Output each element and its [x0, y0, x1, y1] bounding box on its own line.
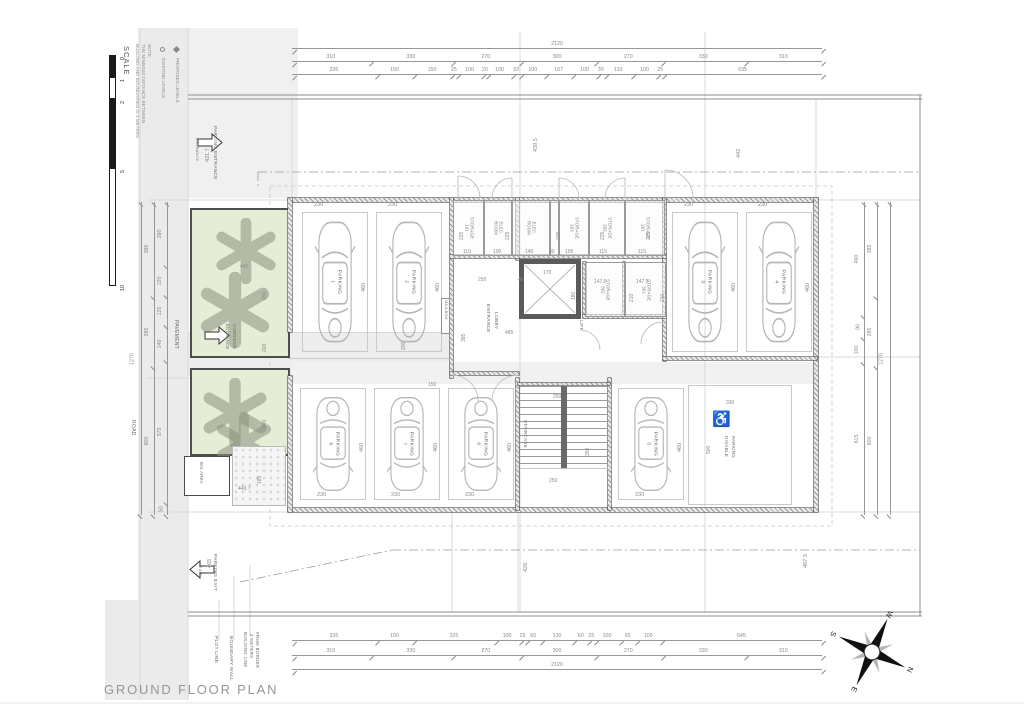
dim-text: 210	[630, 294, 635, 302]
scale-mark: 1	[121, 79, 127, 82]
dim-text: 350	[586, 448, 591, 456]
dim-text: 460	[732, 283, 738, 292]
parking-label: PARKING8	[326, 432, 339, 457]
area-label: ENTRANCE	[484, 304, 489, 333]
dim-text: 500	[707, 446, 712, 454]
note-line: BUILDING AND BOUNDARIES IS 3 METERS	[134, 44, 140, 138]
proposed-levels-label: PROPOSED LEVELS	[174, 58, 179, 103]
parking-label: PARKING6	[474, 432, 487, 457]
dim-text: 460	[360, 443, 366, 452]
dim-text: 180	[572, 292, 577, 300]
note-line: THE MINIMUM DISTANCE BETWEEN	[140, 44, 146, 138]
dim-text: 460	[436, 283, 442, 292]
compass-e: E	[849, 685, 859, 693]
scale-bar-seg	[109, 55, 116, 77]
dim-text: 230	[317, 493, 326, 499]
area-label: PARKING	[731, 436, 736, 458]
note: NOTE: THE MINIMUM DISTANCE BETWEEN BUILD…	[134, 44, 152, 138]
dim-text: 330	[726, 401, 734, 406]
area-label: STAIRCASE	[523, 420, 528, 448]
dim-text: 40	[518, 278, 524, 283]
dim-text: 460	[806, 283, 812, 292]
area-label: PARKING ENTRANCE	[211, 126, 216, 180]
dim-text: 230	[391, 493, 400, 499]
dim-text: 225	[557, 232, 562, 240]
parking-label: PARKING2	[402, 270, 415, 295]
scale-mark: 10	[121, 285, 127, 291]
dim-text: 30	[549, 250, 555, 255]
scale-mark: 5	[121, 170, 127, 173]
dim-text: 115	[638, 250, 646, 255]
dim-text: 442	[737, 149, 743, 158]
mailbox-label: MAILBOX	[444, 300, 448, 320]
dim-text: 230	[465, 493, 474, 499]
dim-text: 230	[635, 493, 644, 499]
area-label: FROM BORDER	[255, 632, 259, 668]
dim-text: 460	[434, 443, 440, 452]
dim-text: 460	[362, 283, 368, 292]
dim-text: 147.5	[594, 280, 607, 285]
parking-label: PARKING7	[400, 432, 413, 457]
area-label: ENTRANCE	[194, 138, 198, 161]
dim-text: 449.7	[238, 487, 251, 492]
area-label: PLOT LINE	[212, 636, 217, 663]
area-label: BIN AREA	[199, 462, 203, 484]
dim-text: 225	[506, 232, 511, 240]
dim-text: 105	[565, 250, 573, 255]
dim-text: 170	[543, 271, 551, 276]
dim-text: 230	[758, 203, 767, 209]
parking-label: PARKING4	[772, 270, 785, 295]
area-label: BOUNDARY WALL	[227, 636, 232, 681]
dim-text: 440	[240, 265, 248, 270]
dim-text: 210	[661, 294, 666, 302]
dim-text: 200	[402, 342, 407, 350]
scale-bar-seg	[109, 168, 116, 286]
area-label: ROAD	[130, 420, 135, 436]
dim-text: 140	[525, 250, 533, 255]
dim-text: 225	[601, 232, 606, 240]
area-label: LIFT	[579, 320, 584, 330]
floor-plan-sheet: 2120 310330270300270330310 3351501502510…	[0, 0, 1024, 724]
dim-text: 200	[263, 344, 268, 352]
scale-mark: 2	[121, 101, 127, 104]
area-label: PARKING EXIT	[211, 554, 216, 591]
parking-label: PARKING1	[328, 270, 341, 295]
dim-text: 439.5	[534, 138, 540, 152]
compass-rose: N S E W	[826, 606, 918, 698]
dim-text: 230	[314, 203, 323, 209]
dim-text: 225	[460, 232, 465, 240]
area-label: CORRIDOR	[232, 324, 236, 349]
area-label: LOBBY	[492, 312, 497, 330]
dim-text: 450	[263, 292, 268, 300]
area-label: ENTRANCE	[225, 324, 229, 349]
dim-text: 390	[263, 420, 268, 428]
dim-text: 110	[463, 250, 471, 255]
parking-label: PARKING3	[698, 270, 711, 295]
existing-level-marker	[160, 47, 165, 52]
dim-text: 426	[524, 563, 530, 572]
dim-text: 225	[647, 232, 652, 240]
scale-bar-seg	[109, 99, 116, 168]
dim-text: 250	[553, 395, 561, 400]
area-label: EXIT	[197, 566, 201, 576]
note-line: NOTE:	[146, 44, 152, 138]
dim-text: 460	[508, 443, 514, 452]
dim-text: 150	[428, 383, 436, 388]
dim-text: 250	[478, 278, 486, 283]
dim-text: 147.5	[636, 280, 649, 285]
compass-s: S	[828, 630, 838, 638]
scale-mark: 0	[121, 57, 127, 60]
existing-levels-label: EXISTING LEVELS	[160, 58, 165, 98]
dim-text: 385	[462, 334, 467, 342]
dim-text: 100	[493, 250, 501, 255]
dim-text: 185	[258, 476, 263, 484]
dim-text: 230	[684, 203, 693, 209]
scale-bar-seg	[109, 77, 116, 99]
dim-text: 230	[388, 203, 397, 209]
area-label: PAVEMENT	[173, 320, 178, 349]
compass-n: N	[905, 665, 915, 674]
dim-text: 250	[549, 479, 557, 484]
dim-text: 115	[599, 250, 607, 255]
compass-w: W	[884, 609, 895, 619]
parking-label: PARKING5	[644, 432, 657, 457]
area-label: BUILDING LINE	[243, 632, 247, 668]
dim-text: 485	[505, 331, 513, 336]
scale-label: SCALE	[123, 46, 131, 76]
page-title: GROUND FLOOR PLAN	[104, 682, 278, 697]
dim-text: 487.3	[804, 554, 810, 568]
area-label: 3 METERS	[249, 634, 253, 658]
area-label: DISABLE	[724, 436, 729, 457]
dim-text: 460	[678, 443, 684, 452]
